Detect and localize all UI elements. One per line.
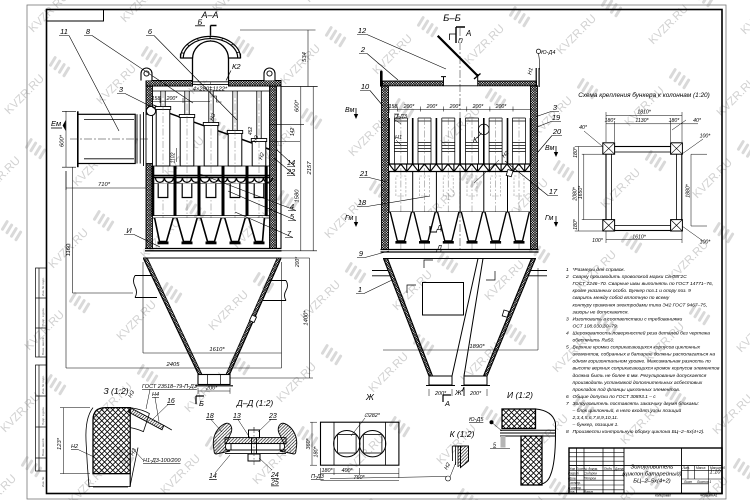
svg-text:(циклон батарейный): (циклон батарейный) <box>622 471 681 478</box>
svg-text:кроме указанных особо. Бункер: кроме указанных особо. Бункер поз.1 и оп… <box>573 288 692 294</box>
svg-text:Разраб.: Разраб. <box>568 472 580 476</box>
svg-text:200*: 200* <box>434 391 447 397</box>
svg-text:А: А <box>444 399 450 408</box>
svg-text:200*: 200* <box>166 96 179 102</box>
svg-text:Васин: Васин <box>584 490 593 494</box>
svg-text:Гм: Гм <box>345 215 354 222</box>
svg-text:Вм: Вм <box>545 145 555 152</box>
svg-text:Сидоров: Сидоров <box>584 472 597 476</box>
svg-text:Схема крепления бункера к коло: Схема крепления бункера к колоннам (1:20… <box>578 91 709 99</box>
svg-text:6: 6 <box>566 394 569 400</box>
svg-text:1160: 1160 <box>66 243 72 256</box>
svg-text:прокладок под фланцы циклонных: прокладок под фланцы циклонных элементов… <box>573 387 681 393</box>
svg-text:22: 22 <box>286 167 296 176</box>
svg-text:П-Д3: П-Д3 <box>394 114 408 120</box>
svg-text:20: 20 <box>552 127 562 136</box>
svg-text:7: 7 <box>566 401 569 407</box>
svg-text:Верхние кромки соприкасающихся: Верхние кромки соприкасающихся корпусов … <box>573 345 701 351</box>
svg-text:4: 4 <box>566 331 569 337</box>
svg-text:2: 2 <box>360 45 366 54</box>
svg-text:1: 1 <box>358 285 362 294</box>
svg-text:40*: 40* <box>579 125 588 131</box>
svg-text:3: 3 <box>566 316 569 322</box>
svg-text:180*: 180* <box>573 146 579 158</box>
svg-text:Лит.: Лит. <box>682 466 691 470</box>
svg-text:Общие допуски по ГОСТ 30893.1: Общие допуски по ГОСТ 30893.1 – с <box>573 394 657 400</box>
svg-text:Т.контр.: Т.контр. <box>568 481 581 485</box>
svg-text:2157: 2157 <box>307 161 313 176</box>
svg-text:З (1:2): З (1:2) <box>103 386 128 396</box>
svg-text:Б: Б <box>199 399 204 408</box>
svg-text:123*: 123* <box>57 437 63 450</box>
svg-text:600*: 600* <box>295 99 301 112</box>
svg-text:Д: Д <box>436 245 442 252</box>
svg-text:Подп. и дата: Подп. и дата <box>41 308 45 326</box>
svg-text:2: 2 <box>565 274 569 280</box>
svg-text:ОСТ 108.030.30–79.: ОСТ 108.030.30–79. <box>573 323 619 329</box>
svg-text:452: 452 <box>248 127 254 136</box>
svg-text:12: 12 <box>358 26 367 35</box>
svg-text:17: 17 <box>549 187 558 196</box>
svg-text:200*: 200* <box>449 104 462 110</box>
svg-text:100*: 100* <box>700 134 712 140</box>
svg-text:710*: 710* <box>98 182 111 188</box>
svg-text:14: 14 <box>209 473 217 480</box>
svg-text:1650*: 1650* <box>578 185 584 200</box>
svg-text:∅282*: ∅282* <box>364 413 381 419</box>
svg-text:180*: 180* <box>314 446 320 458</box>
svg-text:180*: 180* <box>669 118 681 124</box>
svg-text:Инв. №: Инв. № <box>41 476 45 487</box>
svg-text:Формат A1: Формат A1 <box>700 494 718 498</box>
svg-text:*Размеры для справок.: *Размеры для справок. <box>573 267 626 273</box>
svg-text:Золоуловитель поставлять заказ: Золоуловитель поставлять заказчику двумя… <box>573 401 700 407</box>
svg-text:Подп. и дата: Подп. и дата <box>41 407 45 425</box>
svg-text:200*: 200* <box>403 104 416 110</box>
svg-text:Масса: Масса <box>696 466 706 470</box>
svg-text:Ю-Д5: Ю-Д5 <box>469 417 484 423</box>
svg-text:Листов 1: Листов 1 <box>696 480 711 484</box>
svg-text:– бункер, позиция 1.: – бункер, позиция 1. <box>572 422 619 428</box>
svg-text:Петров: Петров <box>584 476 596 480</box>
svg-text:1130*: 1130* <box>635 118 649 124</box>
svg-text:200*: 200* <box>205 386 218 392</box>
svg-text:13: 13 <box>233 413 241 420</box>
svg-text:И: И <box>126 226 132 235</box>
svg-text:№ докум.: № докум. <box>584 467 598 471</box>
svg-text:18: 18 <box>358 198 367 207</box>
svg-text:1102: 1102 <box>171 152 177 163</box>
svg-text:Подп.: Подп. <box>604 467 613 471</box>
svg-text:600*: 600* <box>60 134 66 147</box>
svg-text:Утв.: Утв. <box>568 490 575 494</box>
svg-text:360*: 360* <box>306 438 312 450</box>
svg-text:Ю-Д4: Ю-Д4 <box>541 50 555 56</box>
svg-text:16: 16 <box>167 398 175 405</box>
svg-text:высоте верхних соприкасающихся: высоте верхних соприкасающихся кромок ко… <box>573 367 720 372</box>
svg-text:ГОСТ 23518–79-П-Д3: ГОСТ 23518–79-П-Д3 <box>142 384 198 390</box>
svg-text:Копировал: Копировал <box>655 494 671 498</box>
svg-text:1400*: 1400* <box>303 310 309 326</box>
svg-text:К2: К2 <box>232 62 241 71</box>
svg-text:А: А <box>465 29 471 38</box>
svg-text:сварить между собой вплотную п: сварить между собой вплотную по всему <box>573 294 670 301</box>
svg-text:10: 10 <box>361 82 370 91</box>
svg-text:1890*: 1890* <box>469 344 485 350</box>
svg-text:Дата: Дата <box>614 467 624 471</box>
svg-text:1880*: 1880* <box>686 183 692 198</box>
svg-text:19: 19 <box>552 113 561 122</box>
svg-text:5: 5 <box>566 345 569 351</box>
svg-text:должна быть не более 6 мм. Рег: должна быть не более 6 мм. Регулирование… <box>573 373 707 379</box>
svg-text:Гм: Гм <box>545 215 554 222</box>
svg-text:К (1:2): К (1:2) <box>450 429 475 439</box>
svg-text:контуру применяя электродами т: контуру применяя электродами типа Э42 ГО… <box>573 302 708 308</box>
svg-text:1:10: 1:10 <box>710 470 722 476</box>
svg-text:1610*: 1610* <box>209 347 225 353</box>
svg-text:Масштаб: Масштаб <box>710 466 725 470</box>
svg-text:200*: 200* <box>495 104 508 110</box>
svg-text:одном горизонтальном уровне. М: одном горизонтальном уровне. Максимальна… <box>573 359 712 365</box>
svg-text:Взам. инв.№: Взам. инв.№ <box>41 336 45 355</box>
svg-text:11: 11 <box>60 27 68 36</box>
svg-text:24: 24 <box>270 472 279 479</box>
svg-text:Ем: Ем <box>51 119 61 128</box>
svg-text:158: 158 <box>152 96 161 102</box>
svg-text:– блок циклонный, в него входя: – блок циклонный, в него входят узлы поз… <box>572 407 682 414</box>
svg-text:К: К <box>473 135 478 144</box>
svg-text:Инв. № подл.: Инв. № подл. <box>41 375 45 394</box>
svg-text:Шероховатость поверхностей рез: Шероховатость поверхностей реза деталей … <box>573 330 711 337</box>
svg-text:Золоуловитель: Золоуловитель <box>631 465 674 471</box>
svg-text:Сварку производить проволокой: Сварку производить проволокой марки Св-0… <box>573 273 688 280</box>
svg-text:Ж: Ж <box>365 392 375 402</box>
svg-text:Ж: Ж <box>454 388 463 397</box>
svg-text:534: 534 <box>302 52 308 62</box>
svg-text:100*: 100* <box>700 240 712 246</box>
svg-text:18: 18 <box>206 413 214 420</box>
svg-text:158: 158 <box>389 104 398 110</box>
svg-text:200*: 200* <box>469 391 482 397</box>
svg-text:Д: Д <box>436 225 442 232</box>
svg-text:Изм: Изм <box>569 467 576 471</box>
svg-text:Б: Б <box>198 18 203 27</box>
svg-text:Инв. № подл.: Инв. № подл. <box>41 277 45 296</box>
svg-text:Произвести контрольную сборку: Произвести контрольную сборку циклона БЦ… <box>573 429 705 435</box>
svg-text:21: 21 <box>359 169 368 178</box>
svg-text:1810*: 1810* <box>637 110 652 116</box>
svg-text:ГОСТ 2246–70. Сварные швы выпо: ГОСТ 2246–70. Сварные швы выполнять по Г… <box>573 281 714 287</box>
svg-text:БЦ–2–5х(4+2): БЦ–2–5х(4+2) <box>633 479 671 485</box>
svg-text:Пров.: Пров. <box>568 476 577 480</box>
svg-text:Лист: Лист <box>683 480 693 484</box>
svg-text:Взам. инв.№: Взам. инв.№ <box>41 437 45 456</box>
svg-text:200*: 200* <box>426 104 439 110</box>
svg-text:180*: 180* <box>573 218 579 230</box>
svg-text:Вм: Вм <box>345 107 355 114</box>
svg-text:обеспечить Ra50.: обеспечить Ra50. <box>573 338 615 344</box>
svg-text:200*: 200* <box>472 104 485 110</box>
svg-text:производить установкой дополни: производить установкой дополнительных ас… <box>573 379 703 386</box>
svg-text:142: 142 <box>290 128 296 137</box>
svg-text:Изготовить в соответствии с тр: Изготовить в соответствии с требованиями <box>573 316 683 322</box>
svg-text:П: П <box>458 38 463 45</box>
svg-text:40*: 40* <box>693 118 702 124</box>
svg-text:зазоры не допускаются.: зазоры не допускаются. <box>572 309 629 315</box>
svg-text:элементов, собранных в батарею: элементов, собранных в батарею должны ра… <box>573 352 716 358</box>
svg-text:4×280=1122*: 4×280=1122* <box>193 87 228 93</box>
svg-text:Н2: Н2 <box>71 444 78 450</box>
svg-text:1: 1 <box>566 267 569 273</box>
svg-text:180*: 180* <box>605 118 617 124</box>
svg-text:2,3,4,5,6,7,8,9,10,11.: 2,3,4,5,6,7,8,9,10,11. <box>572 415 619 421</box>
svg-text:2405: 2405 <box>166 362 181 368</box>
svg-text:8: 8 <box>566 429 569 435</box>
svg-text:200*: 200* <box>295 256 301 268</box>
svg-text:100*: 100* <box>592 238 604 244</box>
svg-text:Д–Д (1:2): Д–Д (1:2) <box>236 398 274 408</box>
svg-text:Н4: Н4 <box>152 392 159 398</box>
svg-text:23: 23 <box>268 413 277 420</box>
svg-text:П-Д3: П-Д3 <box>311 474 325 480</box>
svg-text:400*: 400* <box>341 468 353 474</box>
svg-text:Б–Б: Б–Б <box>443 13 461 24</box>
svg-text:1610*: 1610* <box>632 235 647 241</box>
svg-text:25: 25 <box>270 480 279 487</box>
svg-text:И (1:2): И (1:2) <box>507 390 533 400</box>
svg-text:А–А: А–А <box>200 10 218 20</box>
svg-text:Н1-Д3-100/200: Н1-Д3-100/200 <box>143 458 181 464</box>
svg-text:1580: 1580 <box>295 189 301 203</box>
